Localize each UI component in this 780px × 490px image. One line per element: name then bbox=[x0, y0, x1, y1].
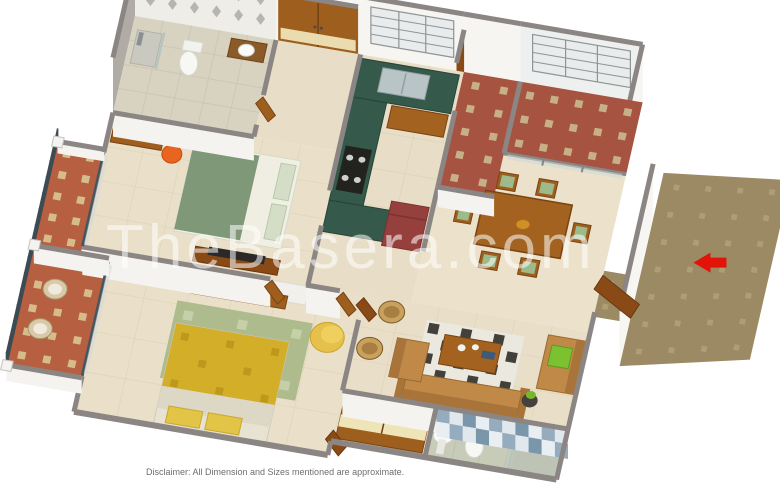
fruit-bowl bbox=[516, 219, 530, 229]
plant-leaves bbox=[526, 391, 536, 399]
chair-seat bbox=[539, 182, 555, 195]
burner bbox=[358, 157, 365, 163]
chair-seat bbox=[500, 175, 516, 188]
burner bbox=[346, 155, 353, 161]
bath1-right-wall-stub bbox=[254, 125, 257, 137]
bath2-back-wall-tile bbox=[542, 440, 555, 457]
bath2-back-wall-tile bbox=[436, 422, 449, 439]
wicker-chair-seat bbox=[33, 323, 47, 334]
toilet-bowl bbox=[180, 51, 198, 75]
wash-basin bbox=[238, 44, 254, 56]
bath2-back-wall-tile bbox=[489, 431, 502, 448]
bath2-back-wall-tile bbox=[529, 437, 542, 454]
accent-chair-pattern bbox=[384, 306, 400, 318]
bath2-back-wall-tile bbox=[450, 424, 463, 441]
bath2-back-wall-tile bbox=[476, 428, 489, 445]
bedroom1-wardrobe-handle bbox=[313, 25, 316, 28]
wicker-chair-seat bbox=[48, 284, 62, 295]
accent-chair-pattern bbox=[362, 342, 378, 354]
disclaimer: Disclaimer: All Dimension and Sizes ment… bbox=[146, 467, 404, 477]
floor-plan-canvas bbox=[0, 0, 780, 490]
bath2-back-wall-tile bbox=[502, 433, 515, 450]
chair-seat bbox=[481, 254, 497, 267]
burner bbox=[342, 175, 349, 181]
bath2-back-wall-tile bbox=[515, 435, 528, 452]
floor-plan-image: TheBasera.com Disclaimer: All Dimension … bbox=[0, 0, 780, 490]
burner bbox=[354, 177, 361, 183]
table-jar bbox=[472, 344, 479, 350]
desk-chair bbox=[162, 145, 182, 163]
bottom-wall-jog bbox=[328, 441, 331, 455]
table-jar bbox=[458, 344, 466, 351]
green-cushion bbox=[547, 345, 572, 369]
bedroom1-wardrobe-handle bbox=[320, 27, 323, 30]
railing-pillar bbox=[28, 239, 41, 251]
bath2-back-wall-tile bbox=[463, 426, 476, 443]
railing-pillar bbox=[1, 360, 14, 372]
chair-seat bbox=[521, 261, 537, 274]
railing-pillar bbox=[52, 136, 65, 148]
yellow-armchair-seat bbox=[321, 325, 343, 343]
